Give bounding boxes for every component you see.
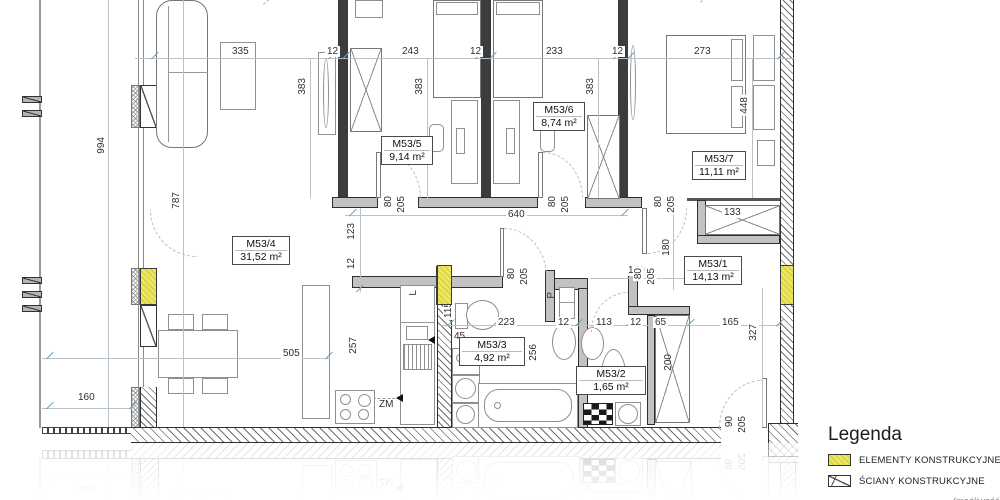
dimension-label: 90 xyxy=(724,414,735,429)
washer-drum xyxy=(456,460,477,481)
dining-table xyxy=(158,330,238,378)
legend-item: ŚCIANY DZIAŁOWE (możliwość aranżacji) xyxy=(828,496,998,500)
dimension-label: 113 xyxy=(594,317,614,328)
room-name: M53/7 xyxy=(695,153,743,166)
floor-plan: 335 12 243 12 233 12 273 640 190 133 165… xyxy=(0,0,800,443)
chair xyxy=(202,490,230,500)
dimension-label: 243 xyxy=(400,46,421,57)
dimension-label: 80 xyxy=(547,194,558,209)
dimension-label: 335 xyxy=(230,46,251,57)
sink-zone-label: ZM xyxy=(377,476,395,487)
room-area: 1,65 m² xyxy=(596,493,632,500)
dimension-line xyxy=(345,215,628,216)
plan-reflection: 335 12 243 12 233 12 273 640 190 133 165… xyxy=(0,443,800,500)
dimension-line xyxy=(183,459,184,500)
dimension-label: 257 xyxy=(348,335,359,356)
washing-machine-icon xyxy=(559,287,575,319)
door-swing-arc xyxy=(543,152,583,198)
sofa-inner-line xyxy=(168,72,208,73)
structural-wall xyxy=(780,0,794,457)
dimension-label: 233 xyxy=(544,46,565,57)
burner xyxy=(358,409,369,420)
dimension-label: 133 xyxy=(722,207,743,218)
dimension-label: 90 xyxy=(724,457,735,472)
washing-machine-line xyxy=(560,302,574,303)
dimension-label: 205 xyxy=(519,266,530,287)
stove xyxy=(335,460,377,496)
room-area: 14,13 m² xyxy=(692,271,733,283)
door-leaf xyxy=(762,456,769,500)
dimension-label: 12 xyxy=(610,46,625,57)
floor-plan-page: 335 12 243 12 233 12 273 640 190 133 165… xyxy=(0,0,1000,500)
ventilation-shaft xyxy=(583,403,613,425)
dimension-label: 12 xyxy=(556,317,571,328)
chair xyxy=(168,314,194,330)
dimension-label: 165 xyxy=(720,317,741,328)
sofa-inner-line xyxy=(168,6,169,142)
dimension-label: 123 xyxy=(346,221,357,242)
dimension-label: 80 xyxy=(633,266,644,281)
dimension-line xyxy=(673,210,674,290)
dimension-tick xyxy=(129,476,137,484)
cabinet-divider xyxy=(401,322,434,323)
dimension-label: 205 xyxy=(737,451,748,472)
washer-label: P xyxy=(546,290,557,301)
wall-segment xyxy=(697,235,780,244)
balcony-bracket xyxy=(22,96,42,103)
window-band xyxy=(138,0,144,428)
dimension-label: 327 xyxy=(748,322,759,343)
dimension-line xyxy=(752,58,753,198)
structural-element-yellow xyxy=(437,265,452,305)
room-name: M53/3 xyxy=(462,339,522,352)
dimension-label: 12 xyxy=(346,256,357,271)
room-label: M53/6 8,74 m² xyxy=(533,102,585,131)
kitchen-column xyxy=(400,459,437,500)
chair xyxy=(168,378,194,394)
balcony-balustrade xyxy=(42,427,134,434)
dimension-label: 273 xyxy=(692,46,713,57)
structural-element-yellow xyxy=(140,268,157,305)
room-area: 4,92 m² xyxy=(474,352,510,364)
washer-unit xyxy=(452,456,482,483)
dimension-label: 200 xyxy=(663,352,674,373)
balcony-bracket xyxy=(22,110,42,117)
bathtub-drain xyxy=(494,402,501,409)
radiator xyxy=(403,344,432,370)
shelf xyxy=(355,0,383,18)
sink-zone-label: ZM xyxy=(377,399,395,410)
wall-segment xyxy=(418,197,538,208)
dimension-label: 994 xyxy=(96,135,107,156)
room-name: M53/5 xyxy=(384,138,430,151)
room-area: 1,65 m² xyxy=(593,381,629,393)
chair xyxy=(168,490,196,500)
pillow xyxy=(731,39,743,81)
sofa xyxy=(156,0,208,148)
arrow-marker xyxy=(396,394,403,402)
burner xyxy=(358,394,371,407)
dimension-line xyxy=(427,58,428,198)
dimension-label: 80 xyxy=(506,266,517,281)
wardrobe xyxy=(350,48,382,132)
structural-element-yellow xyxy=(780,265,794,305)
bathtub-inner xyxy=(484,462,574,497)
wall-segment xyxy=(481,0,491,208)
balcony-edge-line xyxy=(39,458,41,500)
dimension-label: 383 xyxy=(297,76,308,97)
dimension-label: 640 xyxy=(506,209,527,220)
burner xyxy=(358,477,373,492)
appliance-dash xyxy=(368,487,400,488)
kitchen-cabinet xyxy=(302,285,330,419)
floor-plan: 335 12 243 12 233 12 273 640 190 133 165… xyxy=(0,443,800,500)
dimension-line xyxy=(108,0,109,427)
balcony-bracket xyxy=(22,305,42,312)
room-label: M53/3 4,92 m² xyxy=(459,337,525,366)
dimension-tick xyxy=(46,476,54,484)
burner xyxy=(340,464,353,477)
room-name: M53/1 xyxy=(687,258,739,271)
bench xyxy=(757,140,775,166)
pillow xyxy=(436,2,478,15)
wall-segment xyxy=(338,0,348,208)
dimension-label: 205 xyxy=(396,194,407,215)
dimension-label: 12 xyxy=(628,317,643,328)
room-area: 9,14 m² xyxy=(389,151,425,163)
dimension-label: 180 xyxy=(661,237,672,258)
arrow-marker xyxy=(428,336,435,344)
entry-door-swing-arc xyxy=(719,457,763,500)
wall-segment xyxy=(332,197,378,208)
legend-item-label: ŚCIANY KONSTRUKCYJNE xyxy=(859,476,985,487)
boiler xyxy=(615,458,643,484)
burner xyxy=(340,394,351,405)
nightstand xyxy=(753,85,775,130)
dimension-label: 205 xyxy=(560,194,571,215)
dimension-line xyxy=(183,0,184,427)
structural-wall-block xyxy=(140,85,157,128)
dimension-label: 383 xyxy=(414,76,425,97)
decor-dashed-line xyxy=(263,0,291,5)
balcony-bracket xyxy=(22,291,42,298)
plan-reflection-fade xyxy=(0,443,800,500)
dimension-line xyxy=(310,58,311,198)
balcony-bracket xyxy=(22,277,42,284)
room-area: 11,11 m² xyxy=(699,166,739,178)
window-band xyxy=(138,458,146,500)
dimension-label: 223 xyxy=(496,317,517,328)
arrow-marker xyxy=(396,484,403,492)
wardrobe xyxy=(587,115,620,199)
room-label: M53/2 1,65 m² xyxy=(576,491,652,500)
fridge-label: L xyxy=(408,288,419,298)
door-swing-arc xyxy=(150,210,197,257)
room-label: M53/7 11,11 m² xyxy=(692,151,746,180)
room-area: 8,74 m² xyxy=(541,117,577,129)
tv-icon xyxy=(323,58,329,128)
dimension-label: 12 xyxy=(468,46,483,57)
dimension-label: 160 xyxy=(76,483,97,494)
dimension-label: 205 xyxy=(737,414,748,435)
legend-item-suffix: (możliwość aranżacji) xyxy=(952,496,999,500)
structural-wall xyxy=(131,443,721,459)
dimension-label: 205 xyxy=(646,266,657,287)
dimension-label: 256 xyxy=(528,342,539,363)
desk-monitor xyxy=(506,128,515,154)
yellow-hatch-swatch xyxy=(828,454,851,466)
legend: Legenda ELEMENTY KONSTRUKCYJNE ŚCIANY KO… xyxy=(820,424,998,500)
chair xyxy=(202,378,228,394)
dimension-line xyxy=(42,477,135,478)
bathtub-drain xyxy=(494,475,503,484)
dimension-label: 80 xyxy=(383,194,394,209)
dimension-label: 787 xyxy=(171,190,182,211)
washer-drum xyxy=(455,378,476,399)
chair xyxy=(202,314,228,330)
room-name: M53/6 xyxy=(536,104,582,117)
dimension-label: 12 xyxy=(325,46,340,57)
room-area: 31,52 m² xyxy=(240,251,281,263)
structural-wall xyxy=(131,427,721,443)
burner xyxy=(340,479,353,492)
structural-wall xyxy=(768,423,798,457)
balcony-balustrade xyxy=(42,450,136,459)
balcony-edge-line xyxy=(39,0,41,428)
oven xyxy=(406,326,428,340)
desk-monitor xyxy=(456,128,465,154)
dimension-line xyxy=(108,459,109,500)
dimension-line xyxy=(598,58,599,198)
room-name: M53/2 xyxy=(579,368,643,381)
partition-hatch xyxy=(131,268,140,305)
washer-unit xyxy=(452,481,482,500)
pillow xyxy=(496,2,540,15)
structural-wall-block xyxy=(140,458,159,499)
wall-segment xyxy=(647,459,657,500)
dimension-label: 80 xyxy=(653,194,664,209)
dimension-line xyxy=(42,408,135,409)
dimension-line xyxy=(360,208,361,292)
legend-item-label: ELEMENTY KONSTRUKCYJNE xyxy=(859,455,1000,466)
dimension-label: 383 xyxy=(585,76,596,97)
wall-segment xyxy=(628,306,690,315)
burner xyxy=(340,409,351,420)
boiler-drum xyxy=(618,460,640,482)
washbasin xyxy=(552,324,576,360)
diagonal-swatch xyxy=(828,475,851,487)
dimension-label: 505 xyxy=(281,348,302,359)
room-label: M53/1 14,13 m² xyxy=(684,256,742,285)
decor-dashed-line xyxy=(700,0,727,3)
room-label: M53/4 31,52 m² xyxy=(232,236,290,265)
wardrobe xyxy=(655,461,692,500)
room-label: M53/2 1,65 m² xyxy=(576,366,646,395)
legend-item: ELEMENTY KONSTRUKCYJNE xyxy=(828,454,998,466)
structural-wall-block xyxy=(140,305,157,347)
structural-wall-block xyxy=(140,387,157,428)
bathtub xyxy=(478,456,580,500)
wall-segment xyxy=(578,456,590,500)
burner xyxy=(358,464,371,477)
washer-drum xyxy=(455,485,478,500)
partition-hatch xyxy=(131,85,140,128)
room-label: M53/5 9,14 m² xyxy=(381,136,433,165)
boiler-drum xyxy=(618,404,638,424)
partition-hatch xyxy=(131,456,142,499)
room-name: M53/4 xyxy=(235,238,287,251)
legend-title: Legenda xyxy=(828,424,998,446)
dimension-line xyxy=(762,288,763,427)
dimension-label: 448 xyxy=(739,95,750,116)
dimension-label: 65 xyxy=(653,317,668,328)
structural-wall xyxy=(437,458,454,500)
dimension-line xyxy=(135,58,794,59)
legend-item: ŚCIANY KONSTRUKCYJNE xyxy=(828,475,998,487)
dimension-label: 160 xyxy=(76,392,97,403)
dimension-label: 205 xyxy=(666,194,677,215)
dimension-line xyxy=(762,459,763,500)
wall-segment xyxy=(647,315,655,425)
washer-drum xyxy=(456,405,475,424)
kitchen-cabinet xyxy=(302,465,332,500)
ventilation-shaft xyxy=(583,459,615,483)
